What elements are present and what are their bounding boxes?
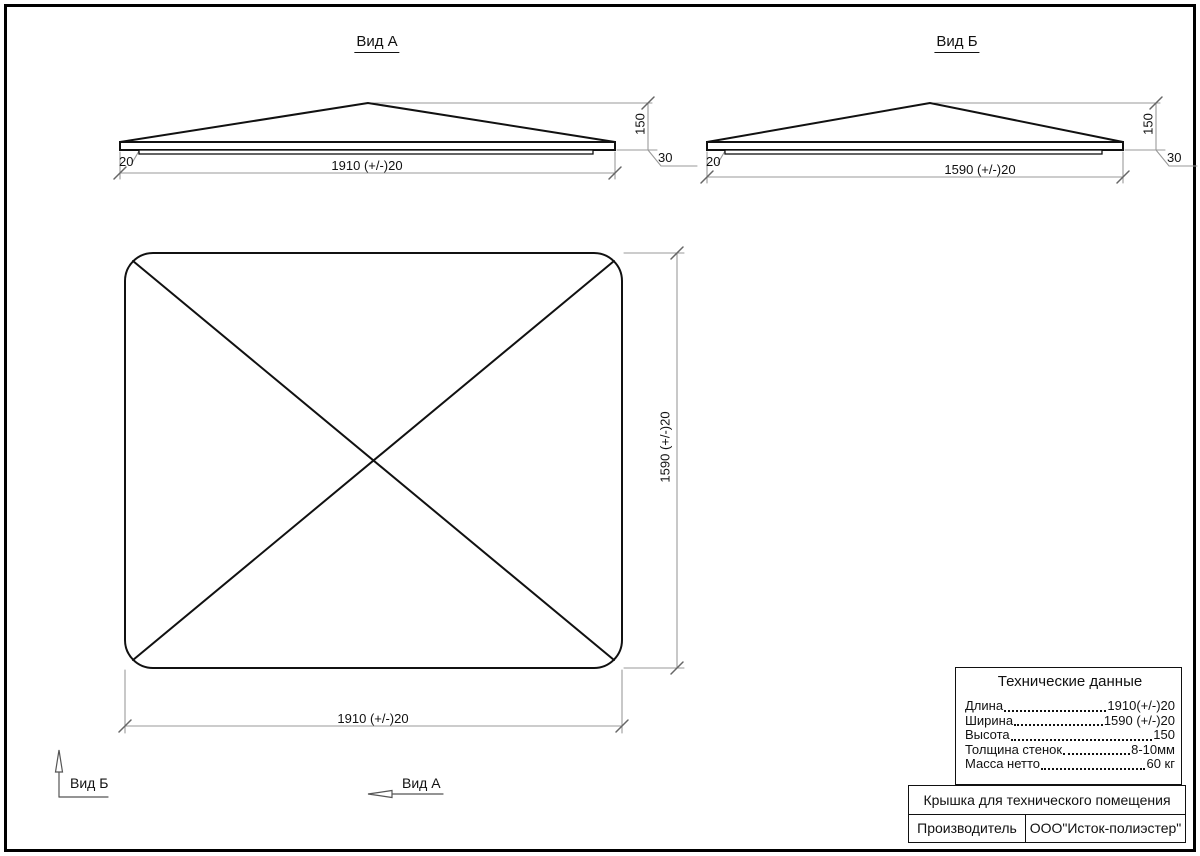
view-a-lip-dim: 20 <box>119 154 133 169</box>
plan-view-drawing <box>119 247 684 733</box>
view-a-edge-dim: 30 <box>658 150 672 165</box>
technical-data-title: Технические данные <box>965 673 1175 690</box>
view-b-title: Вид Б <box>934 33 979 53</box>
dot-leader <box>1004 710 1106 712</box>
tech-value: 150 <box>1153 728 1175 743</box>
dot-leader <box>1041 768 1145 770</box>
view-a-height-dim: 150 <box>633 113 648 135</box>
view-b-edge-dim: 30 <box>1167 150 1181 165</box>
tech-label: Масса нетто <box>965 757 1040 772</box>
view-b-height-dim: 150 <box>1141 113 1156 135</box>
title-block: Крышка для технического помещения Произв… <box>908 785 1186 843</box>
view-b-arrow-label: Вид Б <box>70 775 108 791</box>
view-b-lip-dim: 20 <box>706 154 720 169</box>
tech-value: 8-10мм <box>1131 743 1175 758</box>
dot-leader <box>1011 739 1153 741</box>
tech-row-height: Высота 150 <box>965 728 1175 743</box>
tech-row-width: Ширина 1590 (+/-)20 <box>965 714 1175 729</box>
view-direction-arrows <box>56 750 444 798</box>
view-a-width-dim: 1910 (+/-)20 <box>331 158 402 173</box>
dot-leader <box>1063 753 1130 755</box>
tech-label: Ширина <box>965 714 1013 729</box>
tech-value: 1590 (+/-)20 <box>1104 714 1175 729</box>
title-block-product-name: Крышка для технического помещения <box>909 786 1185 815</box>
title-block-manufacturer-row: Производитель ООО"Исток-полиэстер" <box>909 815 1185 843</box>
plan-object <box>125 253 622 668</box>
tech-label: Толщина стенок <box>965 743 1062 758</box>
manufacturer-value: ООО"Исток-полиэстер" <box>1026 815 1185 843</box>
drawing-page: { "page": { "background": "#ffffff", "li… <box>0 0 1200 856</box>
view-a-arrow-label: Вид А <box>402 775 441 791</box>
manufacturer-label: Производитель <box>909 815 1026 843</box>
view-b-width-dim: 1590 (+/-)20 <box>944 162 1015 177</box>
tech-label: Высота <box>965 728 1010 743</box>
plan-height-dim: 1590 (+/-)20 <box>658 411 673 482</box>
tech-row-wall-thickness: Толщина стенок 8-10мм <box>965 743 1175 758</box>
tech-value: 1910(+/-)20 <box>1107 699 1175 714</box>
tech-label: Длина <box>965 699 1003 714</box>
tech-row-length: Длина 1910(+/-)20 <box>965 699 1175 714</box>
technical-data-table: Технические данные Длина 1910(+/-)20 Шир… <box>955 667 1182 785</box>
plan-width-dim: 1910 (+/-)20 <box>337 711 408 726</box>
view-a-title: Вид А <box>354 33 399 53</box>
tech-value: 60 кг <box>1146 757 1175 772</box>
view-a-arrow <box>368 791 443 798</box>
view-a-drawing <box>114 97 697 179</box>
view-a-object <box>120 103 615 154</box>
dot-leader <box>1014 724 1103 726</box>
view-b-object <box>707 103 1123 154</box>
tech-row-net-mass: Масса нетто 60 кг <box>965 757 1175 772</box>
